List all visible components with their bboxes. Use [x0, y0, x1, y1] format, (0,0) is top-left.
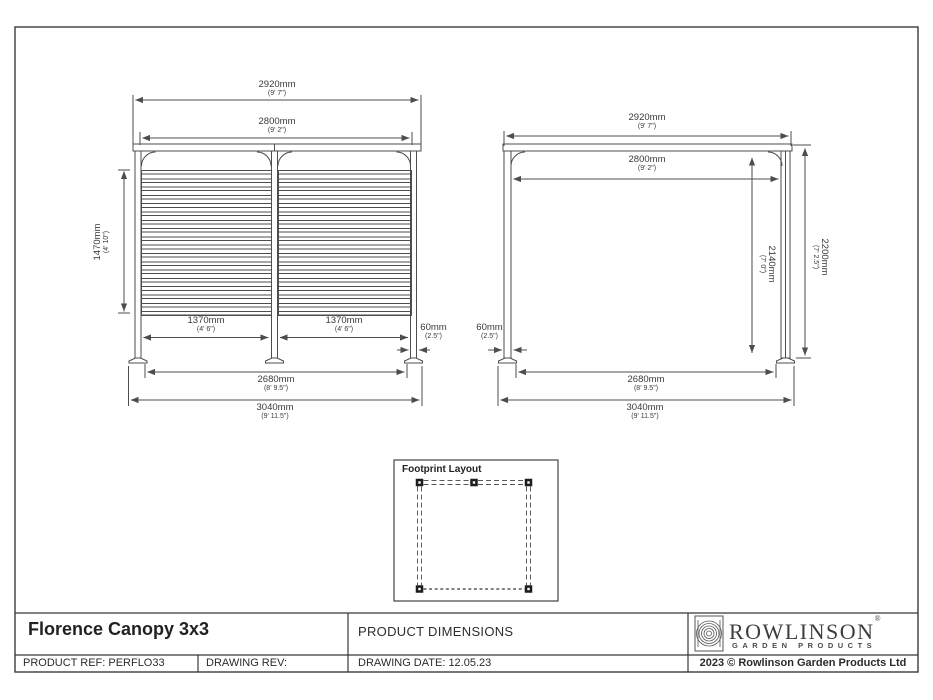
brand-subtitle: GARDEN PRODUCTS: [732, 641, 917, 650]
dim-side-base-depth: 3040mm (9' 11.5"): [610, 403, 680, 421]
slat-panel-right: [278, 170, 412, 316]
drawing-linework: [0, 0, 933, 700]
dim-metric: 1370mm: [188, 316, 225, 326]
dim-imperial: (9' 11.5"): [261, 413, 288, 421]
dim-front-overall-width: 2920mm (9' 7"): [242, 80, 312, 98]
dim-metric: 60mm: [420, 323, 446, 333]
dim-front-inner-width: 2800mm (9' 2"): [242, 117, 312, 135]
dim-imperial: (4' 6"): [197, 326, 215, 334]
dim-side-clear-height: 2140mm (7' 0"): [752, 244, 776, 284]
registered-mark: ®: [875, 614, 881, 623]
dim-metric: 2800mm: [629, 155, 666, 165]
drawing-sheet: 2920mm (9' 7") 2800mm (9' 2") 1470mm (4'…: [0, 0, 933, 700]
dim-imperial: (8' 9.5"): [264, 385, 288, 393]
dim-metric: 2920mm: [629, 113, 666, 123]
dim-metric: 2920mm: [259, 80, 296, 90]
dim-metric: 2800mm: [259, 117, 296, 127]
footprint-diagram: [394, 460, 558, 601]
dim-metric: 3040mm: [627, 403, 664, 413]
dim-metric: 2200mm: [819, 239, 829, 276]
dim-side-post-spacing: 2680mm (8' 9.5"): [611, 375, 681, 393]
dim-front-screen-height: 1470mm (4' 10"): [93, 223, 117, 261]
dim-front-bay-left: 1370mm (4' 6"): [171, 316, 241, 334]
dim-side-post-width: 60mm (2.5"): [467, 323, 512, 341]
dim-imperial: (9' 7"): [638, 123, 656, 131]
dim-imperial: (8' 9.5"): [634, 385, 658, 393]
dim-side-overall-depth: 2920mm (9' 7"): [612, 113, 682, 131]
dim-imperial: (7' 0"): [758, 255, 766, 273]
dim-front-post-width: 60mm (2.5"): [411, 323, 456, 341]
drawing-date: DRAWING DATE: 12.05.23: [358, 657, 491, 669]
drawing-rev: DRAWING REV:: [206, 657, 287, 669]
dim-imperial: (9' 7"): [268, 90, 286, 98]
wood-grain-logo-icon: [695, 616, 723, 651]
dim-imperial: (7' 2.5"): [811, 245, 819, 269]
dim-front-post-spacing: 2680mm (8' 9.5"): [241, 375, 311, 393]
dim-imperial: (4' 6"): [335, 326, 353, 334]
dim-metric: 2680mm: [628, 375, 665, 385]
dim-metric: 2680mm: [258, 375, 295, 385]
footprint-title: Footprint Layout: [402, 464, 481, 475]
dim-metric: 60mm: [476, 323, 502, 333]
dim-imperial: (4' 10"): [103, 231, 111, 253]
dim-front-bay-right: 1370mm (4' 6"): [309, 316, 379, 334]
dim-imperial: (2.5"): [425, 333, 442, 341]
dim-imperial: (9' 2"): [268, 127, 286, 135]
side-view-structure: [499, 144, 795, 363]
dim-side-inner-depth: 2800mm (9' 2"): [612, 155, 682, 173]
dim-metric: 2140mm: [766, 246, 776, 283]
sheet-title: PRODUCT DIMENSIONS: [358, 624, 513, 639]
copyright-notice: 2023 © Rowlinson Garden Products Ltd: [688, 657, 918, 669]
product-title: Florence Canopy 3x3: [28, 619, 209, 640]
dim-metric: 3040mm: [257, 403, 294, 413]
dim-imperial: (2.5"): [481, 333, 498, 341]
slat-panel-left: [141, 170, 272, 316]
dim-front-base-width: 3040mm (9' 11.5"): [240, 403, 310, 421]
dim-imperial: (9' 11.5"): [631, 413, 658, 421]
dim-metric: 1470mm: [93, 224, 103, 261]
product-ref: PRODUCT REF: PERFLO33: [23, 657, 165, 669]
footprint-post-markers: [416, 479, 533, 593]
dim-metric: 1370mm: [326, 316, 363, 326]
dim-imperial: (9' 2"): [638, 165, 656, 173]
dim-side-overall-height: 2200mm (7' 2.5"): [805, 237, 829, 277]
